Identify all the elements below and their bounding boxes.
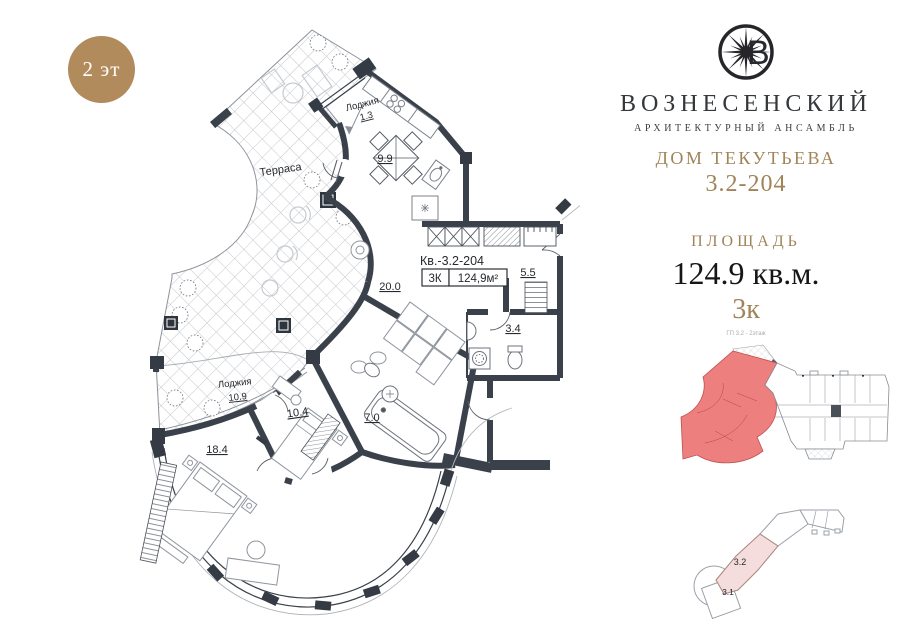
area-block: ПЛОЩАДЬ 124.9 кв.м. 3к xyxy=(598,233,894,326)
site-label-3-2: 3.2 xyxy=(734,557,747,567)
area-value: 124.9 кв.м. xyxy=(598,255,894,292)
unit-number: 3.2-204 xyxy=(598,171,894,198)
apartment-number: Кв.-3.2-204 xyxy=(420,254,484,268)
highlighted-unit xyxy=(681,351,777,463)
brand-name: ВОЗНЕСЕНСКИЙ xyxy=(598,91,894,118)
label-kitchen-area: 9.9 xyxy=(377,153,392,165)
site-section-3-2 xyxy=(716,534,778,594)
floorplate-caption: ГП 3.2 - 2этаж xyxy=(646,331,846,337)
total-area: 124,9м² xyxy=(458,273,499,285)
label-loggia-bottom-area: 10.9 xyxy=(228,391,248,404)
area-rooms: 3к xyxy=(598,294,894,326)
label-living-area: 20.0 xyxy=(379,281,400,293)
rooms-code: 3К xyxy=(428,273,441,285)
site-plan-drawing: 3.2 3.1 xyxy=(678,498,848,623)
terrace-region xyxy=(156,30,376,435)
label-bath-area: 7.0 xyxy=(364,412,379,424)
area-title: ПЛОЩАДЬ xyxy=(598,233,894,251)
label-wc-area: 3.4 xyxy=(505,323,520,335)
floorplate-plan xyxy=(645,343,895,473)
brand-logo-icon: В xyxy=(716,22,776,82)
bedroom1-furniture xyxy=(135,454,279,585)
label-loggia-top-area: 1.3 xyxy=(359,110,374,124)
building-name: ДОМ ТЕКУТЬЕВА xyxy=(598,148,894,169)
label-bedroom1-area: 18.4 xyxy=(206,444,227,456)
floorplate-drawing xyxy=(645,343,895,473)
label-hall-area: 5.5 xyxy=(520,267,535,279)
mini-wing xyxy=(765,363,889,459)
floorplan-drawing: Терраса Лоджия 1.3 9.9 20.0 5.5 3.4 Лодж… xyxy=(60,10,580,630)
corridor-wardrobe xyxy=(428,227,556,246)
floorplan: Терраса Лоджия 1.3 9.9 20.0 5.5 3.4 Лодж… xyxy=(60,10,580,630)
apartment-tag: Кв.-3.2-204 3К 124,9м² xyxy=(420,254,507,286)
brand-tagline: АРХИТЕКТУРНЫЙ АНСАМБЛЬ xyxy=(598,123,894,134)
brand-block: В ВОЗНЕСЕНСКИЙ АРХИТЕКТУРНЫЙ АНСАМБЛЬ ДО… xyxy=(598,22,894,198)
site-label-3-1: 3.1 xyxy=(722,587,734,597)
site-plan: 3.2 3.1 xyxy=(678,498,848,623)
hall-shelf xyxy=(525,282,547,313)
